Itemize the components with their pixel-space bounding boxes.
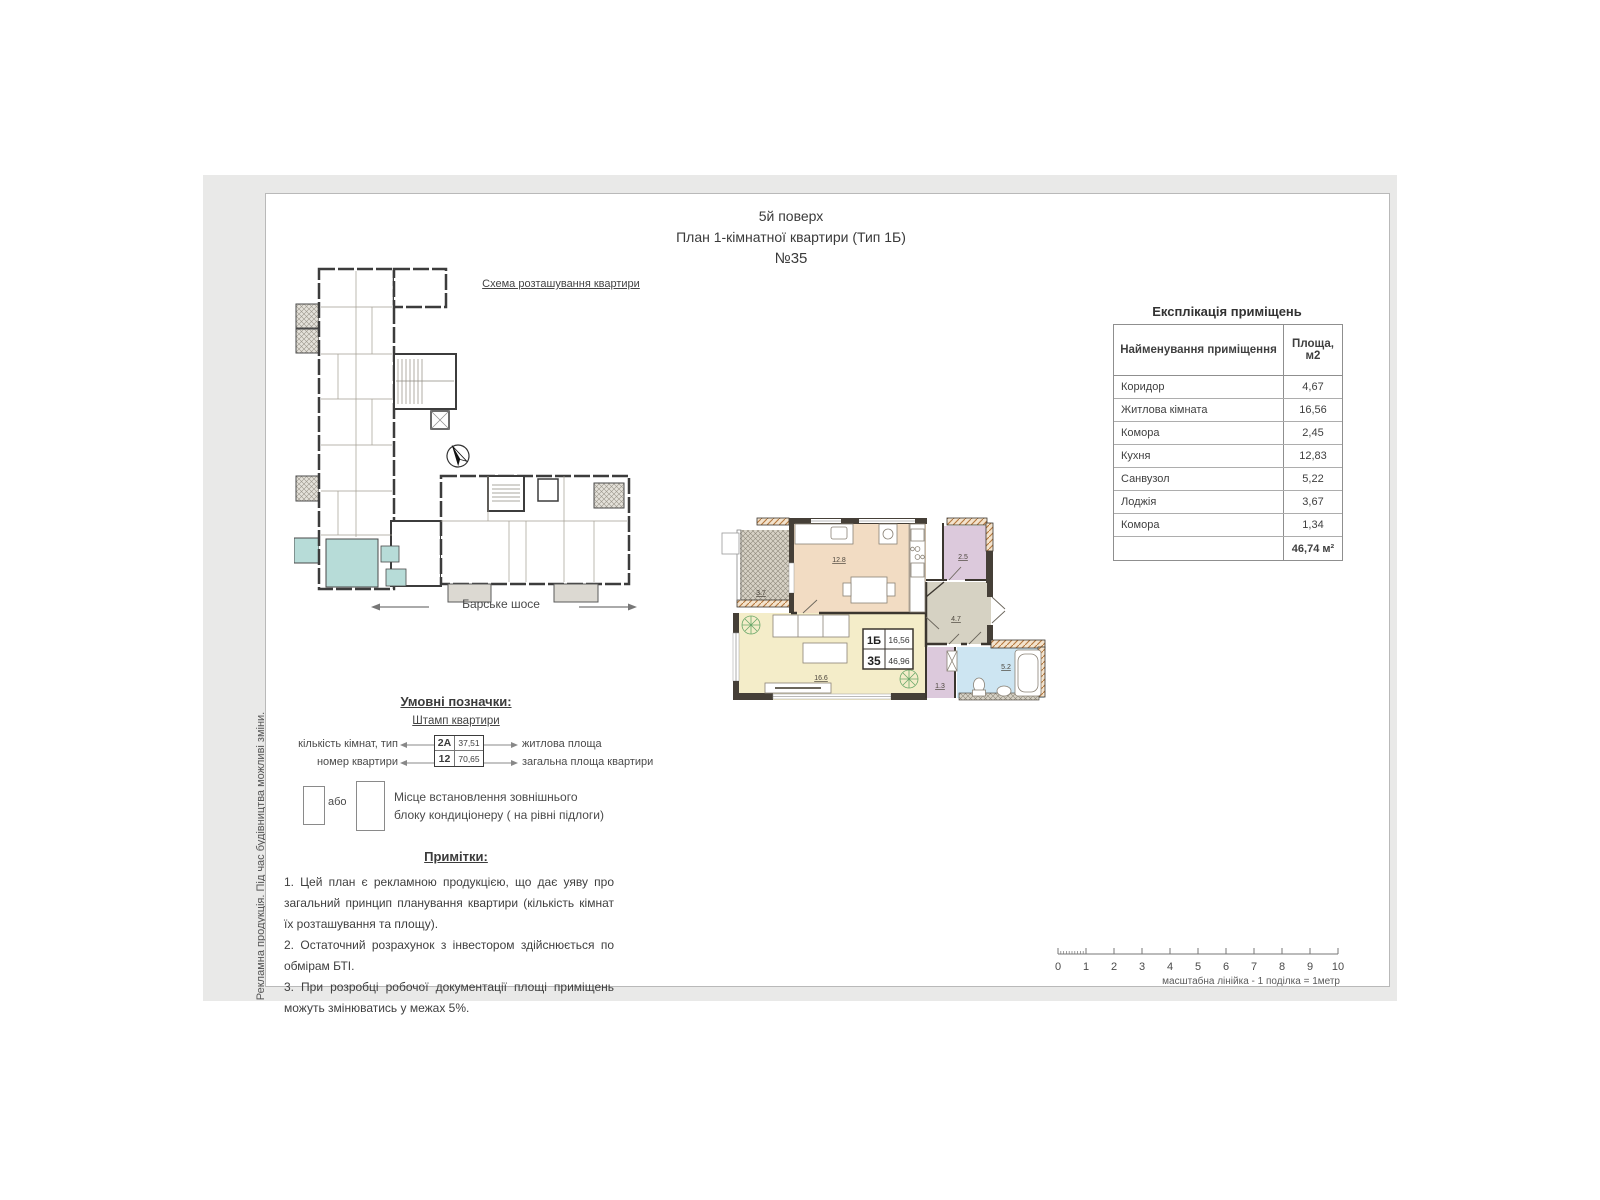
balcony: [296, 329, 319, 353]
wall: [991, 640, 1045, 648]
highlighted-apartment-room: [386, 569, 406, 586]
floor-title: 5й поверх: [641, 206, 941, 227]
legend-title: Умовні позначки:: [356, 694, 556, 709]
ruler-tick: 2: [1111, 961, 1117, 973]
ruler-tick: 7: [1251, 961, 1257, 973]
plant: [900, 670, 918, 688]
building-top-extension: [394, 269, 446, 307]
label-corridor: 4.7: [951, 616, 961, 623]
table-row: Коридор4,67: [1114, 376, 1342, 399]
ruler-tick: 10: [1332, 961, 1344, 973]
wall: [947, 518, 987, 525]
ac-legend-text: Місце встановлення зовнішнього блоку кон…: [394, 788, 604, 824]
highlighted-apartment: [326, 539, 378, 587]
note-item: 3. При розробці робочої документації пло…: [284, 977, 614, 1019]
table-row: Житлова кімната16,56: [1114, 399, 1342, 422]
stamp-living-area: 16,56: [888, 635, 910, 645]
apartment-number: №35: [641, 248, 941, 269]
page: { "page": { "title_line1": "5й поверх", …: [0, 0, 1600, 1200]
wall: [789, 523, 794, 563]
street-arrow-right: [579, 602, 637, 612]
plan-title: План 1-кімнатної квартири (Тип 1Б): [641, 227, 941, 248]
legend-arrow-right: [484, 740, 518, 750]
wall: [737, 600, 793, 607]
ruler-tick: 4: [1167, 961, 1173, 973]
label-storage-top: 2.5: [958, 554, 968, 561]
ruler-tick: 1: [1083, 961, 1089, 973]
plant: [742, 616, 760, 634]
entrance-door: [992, 597, 1005, 623]
highlighted-apartment-room: [381, 546, 399, 562]
note-item: 1. Цей план є рекламною продукцією, що д…: [284, 872, 614, 935]
elevator: [538, 479, 558, 501]
street-label: Барське шосе: [431, 597, 571, 611]
label-storage-small: 1.3: [935, 683, 945, 690]
apartment-stamp: 1Б 16,56 35 46,96: [863, 629, 913, 669]
label-living: 16.6: [814, 675, 828, 682]
explication-table: Найменування приміщення Площа, м2 Коридо…: [1113, 324, 1343, 561]
page-title: 5й поверх План 1-кімнатної квартири (Тип…: [641, 206, 941, 269]
apartment-plan-svg: 1Б 16,56 35 46,96 12.8 2.5 4.7 3.7 16.6 …: [713, 501, 1053, 711]
ruler-tick: 9: [1307, 961, 1313, 973]
table-header: Найменування приміщення Площа, м2: [1114, 325, 1342, 376]
label-bathroom: 5.2: [1001, 664, 1011, 671]
notes-title: Примітки:: [356, 849, 556, 864]
col-header-name: Найменування приміщення: [1114, 325, 1284, 375]
legend-label-living-area: житлова площа: [522, 738, 602, 750]
col-header-area: Площа, м2: [1284, 325, 1342, 375]
notes-body: 1. Цей план є рекламною продукцією, що д…: [284, 872, 614, 1019]
balcony: [594, 483, 624, 508]
stamp-number: 35: [867, 654, 881, 668]
ruler-tick: 6: [1223, 961, 1229, 973]
ac-unit-outline: [722, 533, 739, 554]
ruler-tick: 0: [1055, 961, 1061, 973]
ac-block-large: [356, 781, 385, 831]
balcony: [296, 476, 319, 501]
table-row: Комора1,34: [1114, 514, 1342, 537]
legend-label-rooms-type: кількість кімнат, тип: [274, 738, 398, 750]
legend-label-apartment-number: номер квартири: [274, 756, 398, 768]
wall: [757, 518, 789, 525]
wall: [986, 523, 993, 551]
table-total-row: 46,74 м²: [1114, 537, 1342, 560]
stamp-total-area: 46,96: [888, 656, 910, 666]
wall: [733, 613, 739, 633]
wall: [987, 583, 993, 597]
stairwell: [394, 354, 456, 409]
stamp-type: 1Б: [867, 635, 881, 647]
note-item: 2. Остаточний розрахунок з інвестором зд…: [284, 935, 614, 977]
legend-label-total-area: загальна площа квартири: [522, 756, 653, 768]
table-row: Лоджія3,67: [1114, 491, 1342, 514]
sheet-background: Рекламна продукція. Під час будівництва …: [203, 175, 1397, 1001]
ruler-tick: 5: [1195, 961, 1201, 973]
table-title: Експлікація приміщень: [1113, 304, 1341, 319]
wall: [789, 593, 794, 613]
ruler-tick: 8: [1279, 961, 1285, 973]
wall: [891, 693, 927, 700]
window: [789, 563, 794, 593]
total-area: 46,74 м²: [1284, 537, 1342, 560]
room-storage-top: [942, 526, 986, 580]
scale-ruler: 0 1 2 3 4 5 6 7 8 9 10: [1044, 944, 1354, 976]
building-scheme-svg: [294, 259, 634, 604]
stairwell: [488, 476, 524, 511]
ruler-tick: 3: [1139, 961, 1145, 973]
ac-block-small: [303, 786, 325, 825]
legend-stamp-sample: 2А 37,51 12 70,65: [434, 735, 484, 767]
legend-arrow-left: [400, 740, 434, 750]
wall: [986, 551, 993, 583]
north-compass-icon: [442, 440, 473, 471]
legend-arrow-right: [484, 758, 518, 768]
legend-arrow-left: [400, 758, 434, 768]
legend-stamp-label: Штамп квартири: [356, 715, 556, 727]
table-row: Комора2,45: [1114, 422, 1342, 445]
balcony: [296, 304, 319, 328]
wall: [733, 681, 739, 700]
table-row: Санвузол5,22: [1114, 468, 1342, 491]
legend-or-label: або: [328, 796, 347, 808]
drawing-area: 5й поверх План 1-кімнатної квартири (Тип…: [265, 193, 1390, 987]
label-kitchen: 12.8: [832, 557, 846, 564]
ruler-label: масштабна лінійка - 1 поділка = 1метр: [1056, 976, 1340, 987]
highlighted-balcony: [294, 538, 319, 563]
street-arrow-left: [371, 602, 429, 612]
label-loggia: 3.7: [756, 590, 766, 597]
table-row: Кухня12,83: [1114, 445, 1342, 468]
